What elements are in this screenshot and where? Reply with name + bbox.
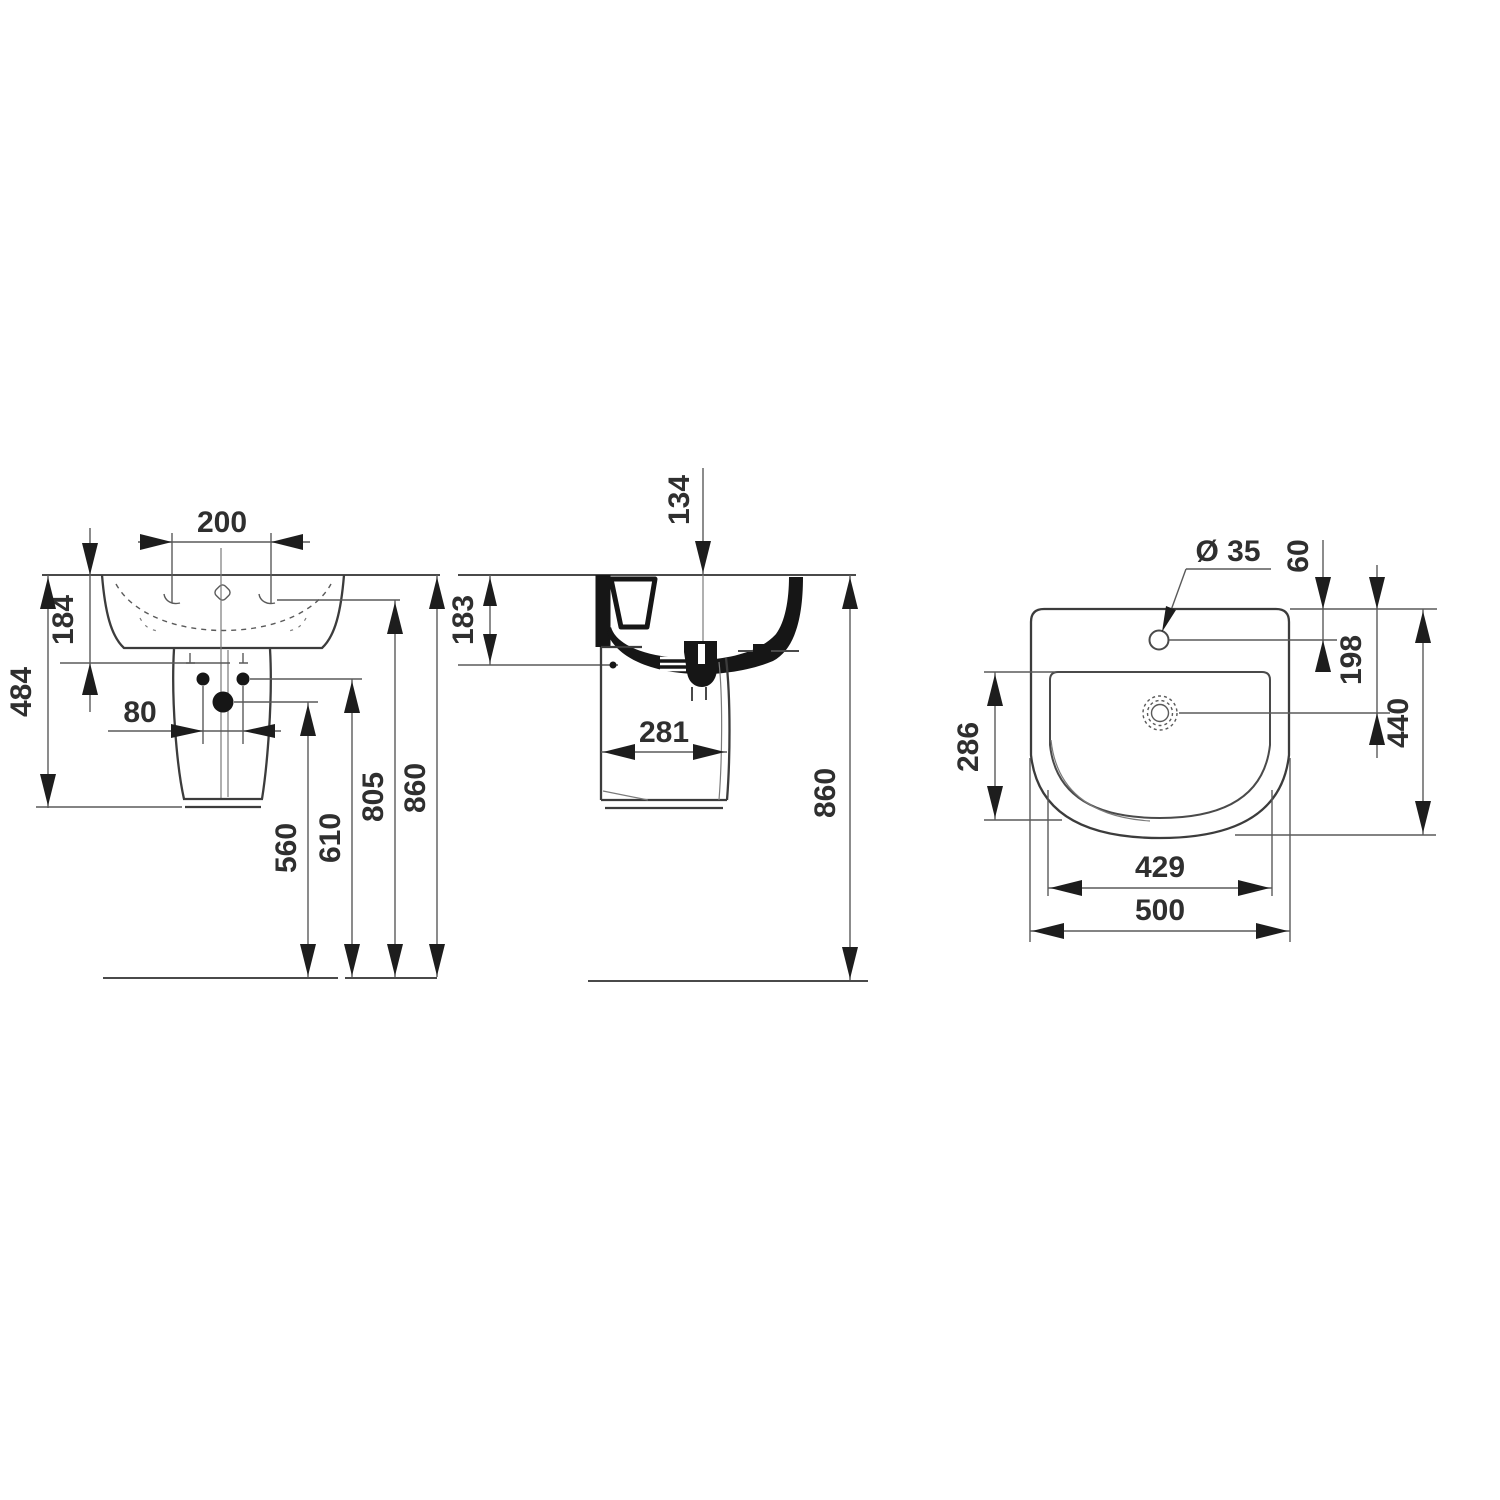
dim-label-805: 805 bbox=[357, 772, 390, 822]
arrow-icon bbox=[82, 663, 98, 695]
arrow-icon bbox=[483, 634, 497, 663]
arrow-icon bbox=[1050, 880, 1082, 896]
arrow-icon bbox=[1315, 577, 1331, 609]
arrow-icon bbox=[1369, 577, 1385, 609]
arrow-icon bbox=[387, 944, 403, 976]
dim-label-429: 429 bbox=[1135, 851, 1185, 884]
arrow-icon bbox=[1415, 801, 1431, 833]
arrow-icon bbox=[140, 534, 172, 550]
arrow-icon bbox=[300, 944, 316, 976]
fixing-hole-right bbox=[237, 673, 250, 686]
arrow-icon bbox=[695, 541, 711, 573]
dim-label-440: 440 bbox=[1382, 698, 1415, 748]
front-view: 80 200 184 484 560 610 805 bbox=[5, 506, 445, 978]
arrow-icon bbox=[693, 744, 725, 760]
arrow-icon bbox=[171, 724, 203, 738]
reference-point bbox=[610, 662, 617, 669]
tap-hole-mark-right bbox=[259, 594, 275, 604]
arrow-icon bbox=[271, 534, 303, 550]
arrow-icon bbox=[243, 724, 275, 738]
basin-outline bbox=[102, 575, 344, 648]
arrow-icon bbox=[40, 774, 56, 806]
dim-label-500: 500 bbox=[1135, 894, 1185, 927]
side-view: 183 134 281 860 bbox=[447, 468, 868, 981]
waste-slot bbox=[698, 644, 705, 664]
bowl-hidden-edge-hint bbox=[140, 618, 306, 631]
pedestal-outline bbox=[173, 649, 271, 799]
arrow-icon bbox=[842, 947, 858, 979]
arrow-icon bbox=[1415, 611, 1431, 643]
waste-hole-inner-ring bbox=[1152, 705, 1169, 722]
dim-label-281: 281 bbox=[639, 716, 689, 749]
dim-label-560: 560 bbox=[270, 823, 303, 873]
overflow-mark bbox=[213, 583, 231, 601]
dim-label-60: 60 bbox=[1282, 539, 1315, 572]
washbasin-dimension-drawing: 80 200 184 484 560 610 805 bbox=[0, 0, 1500, 1500]
arrow-icon bbox=[987, 674, 1003, 706]
arrow-icon bbox=[300, 704, 316, 736]
tap-deck-section bbox=[611, 579, 655, 627]
dim-label-200: 200 bbox=[197, 506, 247, 539]
bowl-hidden-edge bbox=[116, 584, 331, 631]
dim-label-198: 198 bbox=[1335, 635, 1368, 685]
fixing-hole-left bbox=[197, 673, 210, 686]
arrow-icon bbox=[987, 786, 1003, 818]
pedestal-back-inner-edge bbox=[719, 662, 722, 800]
arrow-icon bbox=[1256, 923, 1288, 939]
tap-hole bbox=[1150, 631, 1169, 650]
waste-outlet bbox=[213, 692, 234, 713]
arrow-icon bbox=[483, 577, 497, 606]
arrow-icon bbox=[429, 944, 445, 976]
dim-label-860-front: 860 bbox=[399, 763, 432, 813]
rim-lug-section bbox=[753, 644, 771, 655]
basin-back-wall-section bbox=[596, 575, 611, 647]
arrow-icon bbox=[344, 944, 360, 976]
pedestal-inner-line bbox=[603, 791, 648, 800]
fixing-bracket-marks bbox=[186, 653, 248, 663]
arrow-icon bbox=[429, 577, 445, 609]
dim-label-80: 80 bbox=[123, 696, 156, 729]
dim-label-286: 286 bbox=[952, 722, 985, 772]
arrow-icon bbox=[1032, 923, 1064, 939]
arrow-icon bbox=[387, 602, 403, 634]
arrow-icon bbox=[82, 543, 98, 575]
top-view: Ø 35 60 198 440 286 429 bbox=[952, 535, 1437, 942]
basin-outer-outline bbox=[1031, 609, 1289, 838]
bowl-inner-outline bbox=[1050, 672, 1270, 818]
pedestal-back-edge bbox=[726, 658, 730, 800]
technical-drawing-page: 80 200 184 484 560 610 805 bbox=[0, 0, 1500, 1500]
dim-label-610: 610 bbox=[314, 813, 347, 863]
arrow-icon bbox=[842, 577, 858, 609]
dim-label-860-side: 860 bbox=[809, 768, 842, 818]
dim-label-183: 183 bbox=[447, 595, 480, 645]
arrow-icon bbox=[40, 577, 56, 609]
dim-label-484: 484 bbox=[5, 667, 38, 717]
arrow-icon bbox=[1315, 640, 1331, 672]
arrow-icon bbox=[344, 681, 360, 713]
dim-label-diameter-35: Ø 35 bbox=[1195, 535, 1260, 568]
arrow-icon bbox=[1238, 880, 1270, 896]
dim-label-134: 134 bbox=[663, 475, 696, 525]
arrow-icon bbox=[603, 744, 635, 760]
